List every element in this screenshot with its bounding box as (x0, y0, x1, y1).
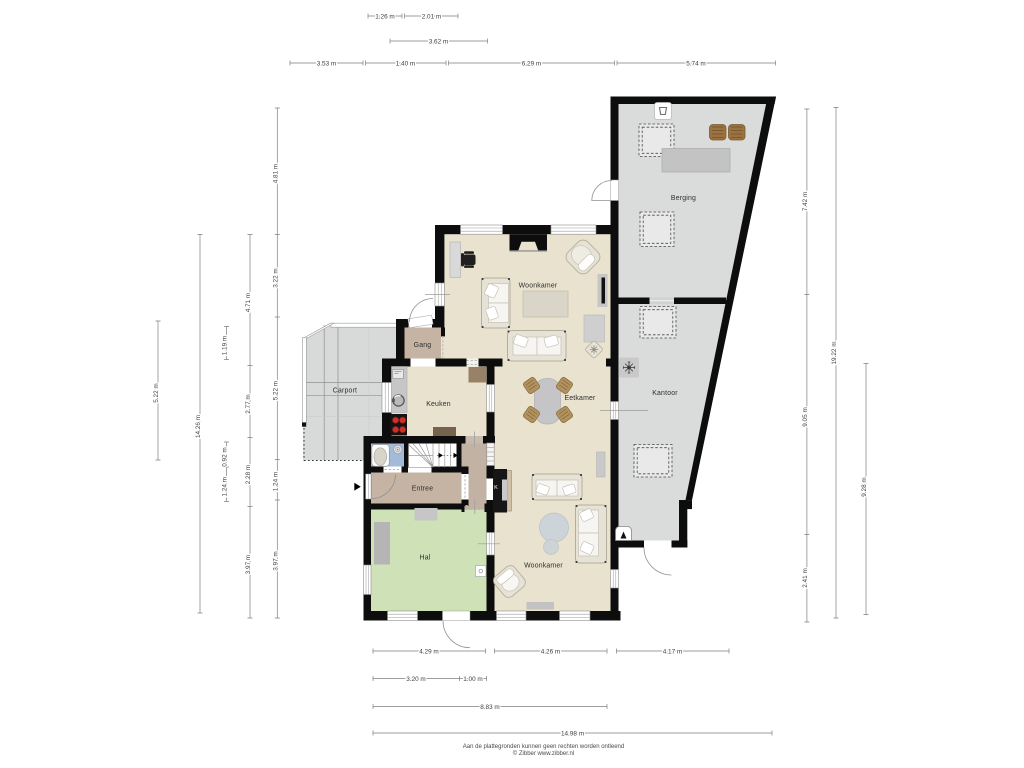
svg-text:Hal: Hal (420, 555, 431, 562)
svg-text:1.24 m: 1.24 m (222, 477, 229, 497)
svg-text:5.22 m: 5.22 m (153, 383, 160, 403)
svg-text:Keuken: Keuken (426, 401, 451, 408)
svg-text:4.29 m: 4.29 m (419, 649, 439, 656)
svg-text:Eetkamer: Eetkamer (564, 395, 596, 402)
svg-text:3.22 m: 3.22 m (272, 268, 279, 288)
svg-text:3.97 m: 3.97 m (245, 555, 252, 575)
svg-text:2.01 m: 2.01 m (422, 14, 442, 21)
svg-text:5.22 m: 5.22 m (272, 381, 279, 401)
svg-text:1.24 m: 1.24 m (272, 472, 279, 492)
svg-text:Berging: Berging (671, 195, 696, 202)
svg-text:2.41 m: 2.41 m (802, 568, 809, 588)
svg-text:2.77 m: 2.77 m (245, 394, 252, 414)
svg-text:© Zibber www.zibber.nl: © Zibber www.zibber.nl (513, 750, 574, 757)
svg-text:Woonkamer: Woonkamer (524, 563, 563, 570)
svg-text:4.26 m: 4.26 m (541, 649, 561, 656)
svg-text:Entree: Entree (412, 486, 434, 493)
svg-text:8.83 m: 8.83 m (480, 704, 500, 711)
svg-text:3.53 m: 3.53 m (317, 61, 337, 68)
svg-text:2.28 m: 2.28 m (245, 465, 252, 485)
svg-text:1.19 m: 1.19 m (222, 336, 229, 356)
svg-text:3.97 m: 3.97 m (272, 551, 279, 571)
svg-text:14.98 m: 14.98 m (561, 731, 584, 738)
svg-text:4.17 m: 4.17 m (663, 649, 683, 656)
svg-text:7.42 m: 7.42 m (802, 192, 809, 212)
svg-text:9.05 m: 9.05 m (802, 407, 809, 427)
svg-text:3.20 m: 3.20 m (406, 676, 426, 683)
svg-text:1.40 m: 1.40 m (396, 61, 416, 68)
svg-text:4.71 m: 4.71 m (245, 293, 252, 313)
svg-text:0.92 m: 0.92 m (222, 447, 229, 467)
svg-text:6.29 m: 6.29 m (522, 61, 542, 68)
svg-text:Carport: Carport (333, 388, 357, 395)
svg-text:1.00 m: 1.00 m (463, 676, 483, 683)
svg-text:3.62 m: 3.62 m (429, 39, 449, 46)
svg-text:Gang: Gang (414, 342, 432, 349)
svg-text:19.22 m: 19.22 m (831, 341, 838, 364)
svg-text:Woonkamer: Woonkamer (519, 283, 558, 290)
svg-text:K: K (494, 485, 498, 491)
svg-text:Aan de plattegronden kunnen ge: Aan de plattegronden kunnen geen rechten… (463, 744, 624, 750)
svg-text:1.26 m: 1.26 m (375, 14, 395, 21)
svg-text:Kantoor: Kantoor (652, 390, 678, 397)
svg-text:9.28 m: 9.28 m (861, 477, 868, 497)
svg-text:5.74 m: 5.74 m (686, 61, 706, 68)
svg-text:14.26 m: 14.26 m (195, 415, 202, 438)
svg-text:4.81 m: 4.81 m (272, 164, 279, 184)
